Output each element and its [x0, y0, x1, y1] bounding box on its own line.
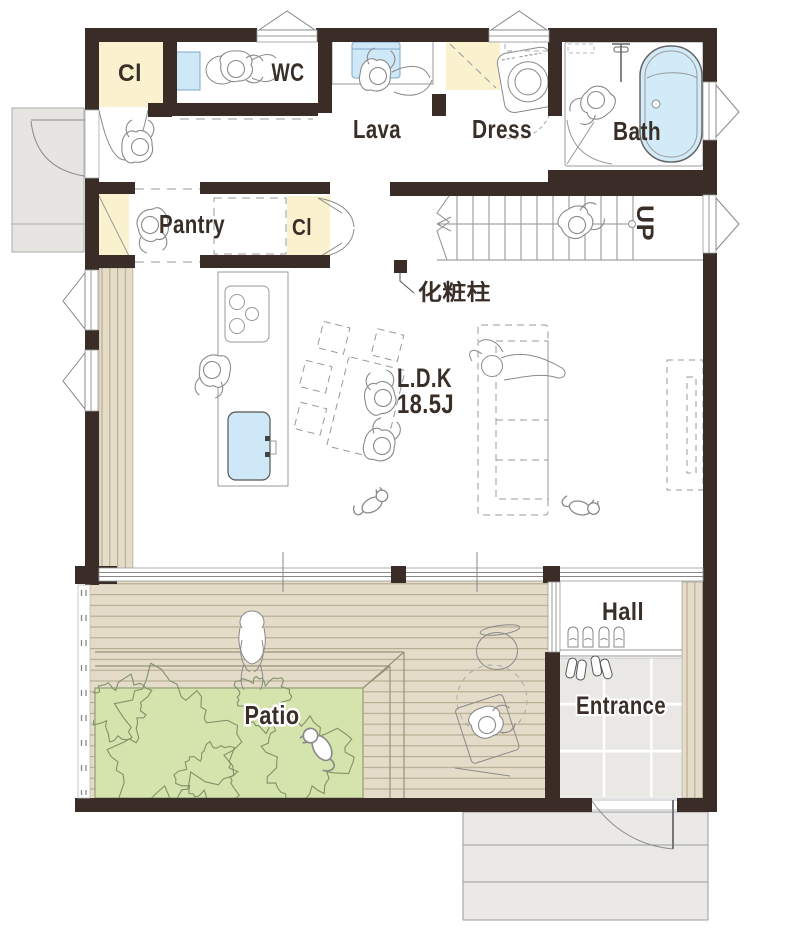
porch — [12, 108, 84, 252]
person-stairs — [554, 196, 607, 245]
entrance-label: Entrance — [576, 692, 666, 720]
window-bench-strip — [99, 268, 133, 585]
person-hallway — [122, 120, 154, 163]
porch-door-frame — [85, 110, 99, 178]
window-right-bath — [703, 82, 739, 140]
entrance-steps — [463, 812, 708, 920]
bath-label: Bath — [613, 116, 661, 146]
person-dining-2 — [360, 415, 402, 465]
hall-partition — [548, 582, 560, 652]
hall-label: Hall — [602, 598, 644, 626]
shoe-cabinet — [682, 582, 703, 798]
dress-label: Dress — [472, 114, 532, 144]
closet-top-label: Cl — [118, 60, 142, 87]
floor-plan-page: Cl WC Lava Dress Bath Pantry Cl 化粧柱 L.D.… — [0, 0, 800, 946]
window-top-1 — [257, 11, 317, 42]
person-sofa — [470, 340, 565, 380]
entrance-tiles — [558, 658, 682, 798]
window-right-stairs — [703, 195, 739, 253]
hall-slippers — [568, 627, 624, 647]
wc-label: WC — [272, 59, 305, 87]
sofa — [478, 325, 548, 515]
pillar-leader-line — [400, 273, 414, 293]
pillar-note-label: 化粧柱 — [418, 280, 491, 305]
floor-plan: Cl WC Lava Dress Bath Pantry Cl 化粧柱 L.D.… — [0, 0, 800, 946]
ldk-size-label: 18.5J — [397, 389, 454, 419]
window-left-1 — [63, 270, 98, 330]
person-wc — [220, 51, 263, 83]
tv-board — [667, 360, 703, 490]
lava-label: Lava — [353, 114, 401, 144]
deck-fence — [78, 585, 90, 798]
cat-sofa — [560, 492, 601, 519]
window-left-2 — [63, 350, 98, 411]
window-top-2 — [489, 11, 549, 42]
stairs-up-label: UP — [631, 205, 658, 241]
decorative-pillar — [394, 260, 407, 273]
closet-mid-label: Cl — [292, 214, 312, 240]
person-dining-1 — [360, 369, 399, 417]
patio-label: Patio — [245, 700, 300, 730]
cat-ldk — [350, 486, 392, 521]
hall-step-edge — [560, 650, 682, 656]
pantry-label: Pantry — [159, 209, 225, 239]
